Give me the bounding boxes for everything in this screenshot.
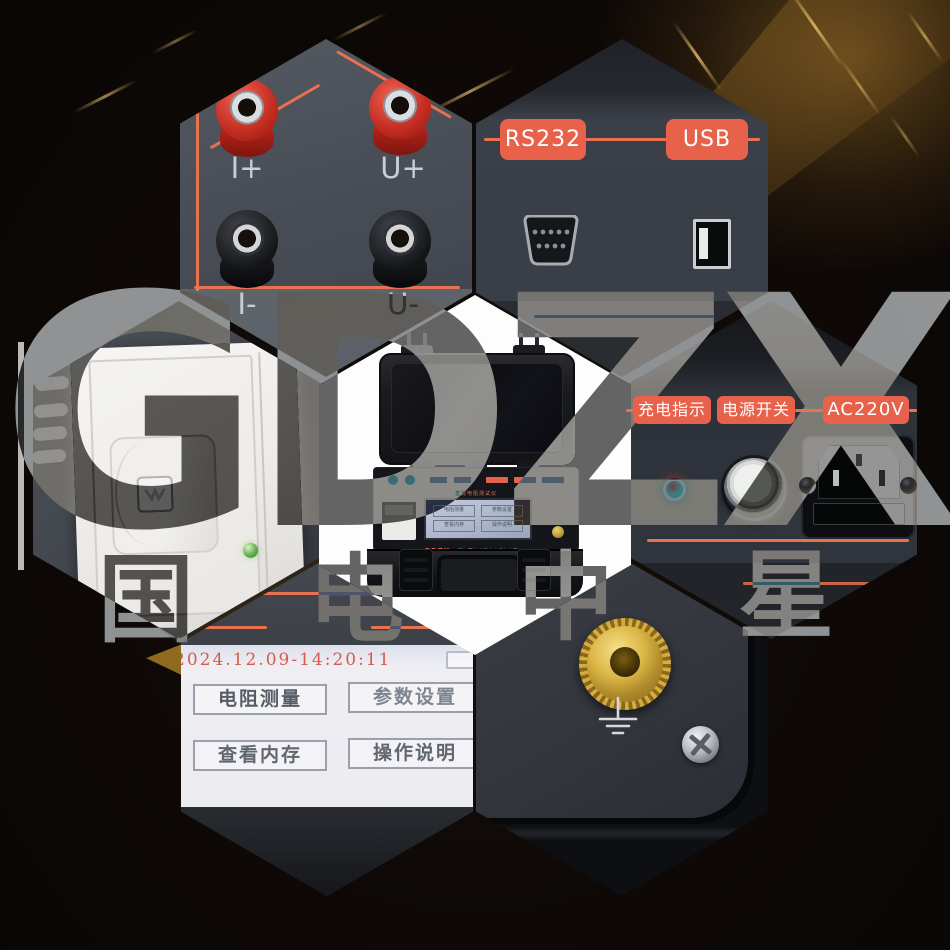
vent-slot: [31, 449, 66, 465]
device-panel: 直流电阻测试仪 电阻测量 参数设置 查看内存 操作说明 GDZX 武汉国电中星电…: [373, 467, 579, 551]
device-panel-title: 直流电阻测试仪: [374, 490, 578, 497]
latch-ridge: [404, 568, 428, 572]
panel-screw: [682, 726, 719, 763]
case-latch: [399, 549, 433, 591]
inlet-screw: [900, 477, 917, 494]
streak: [73, 79, 137, 113]
red-led-indicator: [663, 478, 686, 501]
mini-terminal-red: [405, 475, 415, 485]
vent-slot: [32, 426, 67, 442]
pinstripe: [795, 409, 823, 412]
mini-label-chip: [542, 477, 564, 483]
screen-timestamp: 2024.12.09-14:20:11: [174, 650, 391, 670]
screen-menu-button: 查看内存: [193, 740, 327, 771]
power-switch-label: 电源开关: [717, 396, 795, 424]
latch-ridge: [522, 558, 546, 562]
case-base: [367, 549, 583, 597]
case-latch: [517, 549, 551, 591]
fuse-drawer: [813, 503, 905, 525]
pinstripe: [196, 113, 199, 291]
mini-menu-button: 电阻测量: [433, 505, 475, 517]
pinstripe: [647, 539, 909, 542]
usb-tongue: [699, 228, 708, 259]
white-strip-left: [18, 342, 24, 570]
streak: [152, 29, 198, 54]
ground-symbol-icon: [594, 696, 642, 744]
rs232-db9-port: [516, 215, 586, 267]
mini-label-chip: [486, 477, 508, 483]
terminal-post-I-plus: [216, 79, 278, 157]
screen-menu-button: 参数设置: [348, 682, 482, 713]
terminal-label: U+: [371, 151, 435, 185]
panel-below-screen: [181, 807, 473, 896]
lcd-screen: 2024.12.09-14:20:11 电阻测量 参数设置 查看内存 操作说明: [181, 645, 473, 807]
mini-label-chip: [514, 477, 536, 483]
pinstripe: [534, 315, 714, 318]
mini-menu-button: 查看内存: [433, 520, 475, 532]
mini-terminal-red: [388, 475, 398, 485]
ac-inlet: [801, 435, 915, 539]
charge-indicator-label: 充电指示: [633, 396, 711, 424]
brass-hole: [610, 647, 640, 677]
ac-input-label: AC220V: [823, 396, 909, 424]
terminal-label: U-: [371, 287, 435, 321]
terminal-post-I-minus: [216, 210, 278, 288]
terminal-label: I+: [215, 151, 279, 185]
mini-label-chip: [430, 477, 447, 483]
latch-ridge: [522, 578, 546, 582]
mini-menu-button: 参数设置: [481, 505, 523, 517]
ac-pin: [856, 454, 862, 466]
inlet-screw: [799, 477, 816, 494]
streak: [333, 12, 388, 42]
pinstripe: [909, 409, 917, 412]
power-button: [724, 458, 784, 518]
case-edge-band: [476, 826, 768, 842]
ac-socket: [818, 445, 900, 499]
latch-ridge: [522, 568, 546, 572]
printer-logo: [136, 476, 173, 513]
mini-printer-paper: [385, 505, 413, 515]
screen-menu-button: 操作说明: [348, 738, 482, 769]
case-handle: [437, 555, 521, 595]
rs232-label: RS232: [500, 119, 586, 160]
latch-ridge: [404, 558, 428, 562]
terminal-post-U-plus: [369, 77, 431, 155]
terminal-label: I-: [215, 287, 279, 321]
screen-menu-button: 电阻测量: [193, 684, 327, 715]
mini-menu-button: 操作说明: [481, 520, 523, 532]
ac-pin: [879, 470, 885, 486]
vent-slot: [34, 376, 69, 392]
mini-lcd: 电阻测量 参数设置 查看内存 操作说明: [424, 498, 532, 540]
pinstripe: [743, 582, 883, 585]
ac-pin: [833, 470, 839, 486]
mini-ground-terminal: [552, 526, 564, 538]
lid-inner: [391, 363, 563, 453]
vent-slot: [33, 403, 68, 419]
case-lid: [379, 353, 575, 465]
mini-label-chip: [454, 477, 471, 483]
terminal-post-U-minus: [369, 210, 431, 288]
mini-printer: [382, 502, 416, 540]
usb-a-port: [693, 219, 731, 269]
battery-icon: [446, 651, 476, 669]
latch-ridge: [404, 578, 428, 582]
promo-collage: I+ U+ I- U- RS232 USB: [0, 0, 950, 950]
usb-label: USB: [666, 119, 748, 160]
